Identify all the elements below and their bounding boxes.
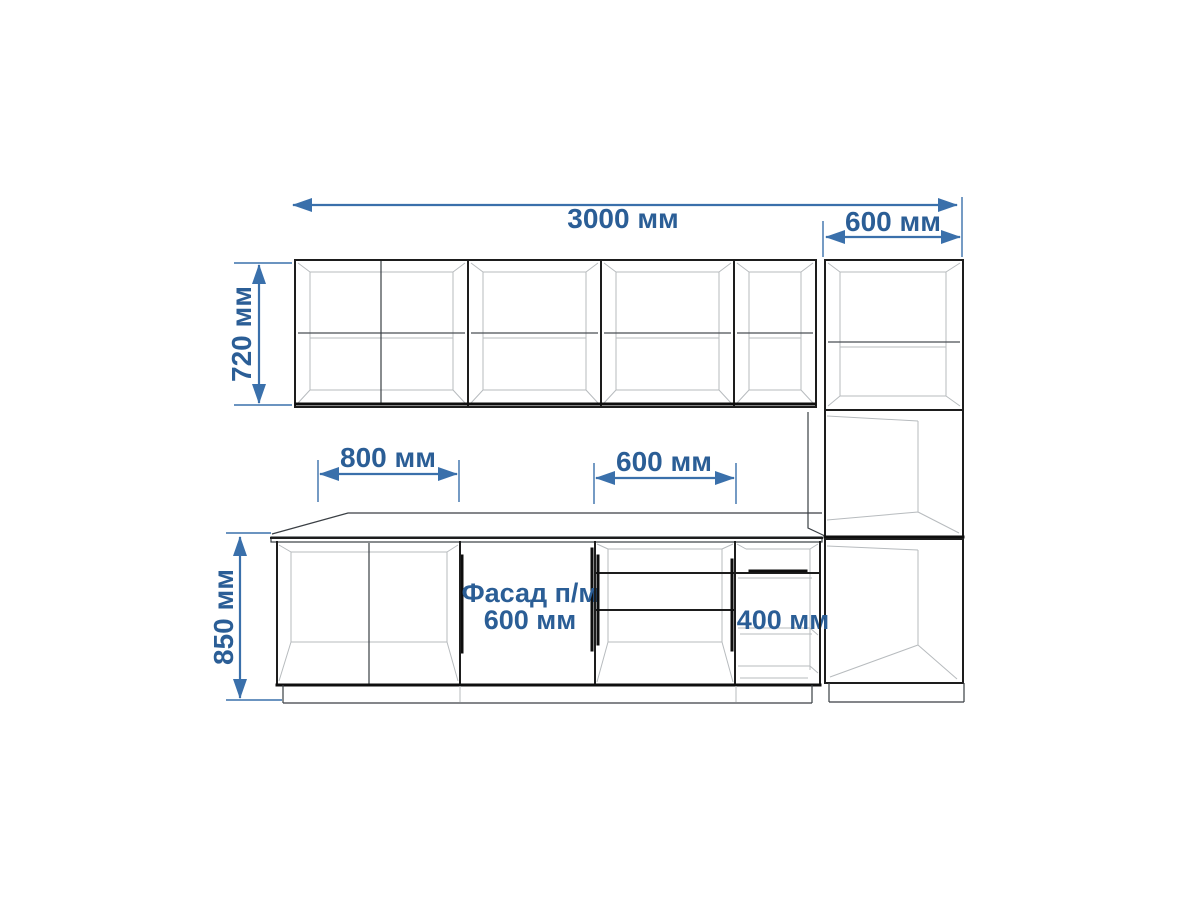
drawing-svg: Фасад п/м 600 мм 400 мм 3000 мм <box>0 0 1201 900</box>
base-run-plinth <box>283 685 812 703</box>
tall-column-back-edge <box>808 412 825 536</box>
tall-cabinet-column <box>808 260 964 702</box>
tall-upper-cabinet <box>825 260 963 410</box>
drawer-front-lines <box>597 573 733 610</box>
facade-label-line1: Фасад п/м <box>462 578 599 608</box>
dim-wall-cabinet-height: 720 мм <box>226 263 292 405</box>
mid-base-width-label: 600 мм <box>616 446 712 477</box>
base-cabinet-height-label: 850 мм <box>208 569 239 665</box>
tall-lower-cabinet <box>825 539 963 683</box>
wall-cabinet-run <box>295 260 816 407</box>
kitchen-elevation-drawing: Фасад п/м 600 мм 400 мм 3000 мм <box>0 0 1201 900</box>
tall-cabinet-plinth <box>829 683 964 702</box>
dim-left-base-width: 800 мм <box>318 442 459 502</box>
base-open-cabinet <box>279 543 458 684</box>
facade-label-line2: 600 мм <box>484 605 577 635</box>
tall-oven-niche <box>825 410 963 537</box>
left-base-width-label: 800 мм <box>340 442 436 473</box>
drawer-unit-width-label: 400 мм <box>737 605 830 635</box>
wall-cabinet-height-label: 720 мм <box>226 286 257 382</box>
tall-unit-width-label: 600 мм <box>845 206 941 237</box>
dim-tall-unit-width: 600 мм <box>823 206 960 257</box>
dishwasher-facade-panel: Фасад п/м 600 мм <box>462 549 599 652</box>
base-drawer-cabinet <box>597 544 733 682</box>
wall-cabinet-interiors <box>298 263 813 403</box>
total-width-label: 3000 мм <box>567 203 679 234</box>
base-cabinet-run: Фасад п/м 600 мм 400 мм <box>277 542 829 703</box>
countertop <box>271 513 822 542</box>
dim-mid-base-width: 600 мм <box>594 446 736 504</box>
base-400-unit: 400 мм <box>737 544 830 678</box>
dim-base-cabinet-height: 850 мм <box>208 533 282 700</box>
